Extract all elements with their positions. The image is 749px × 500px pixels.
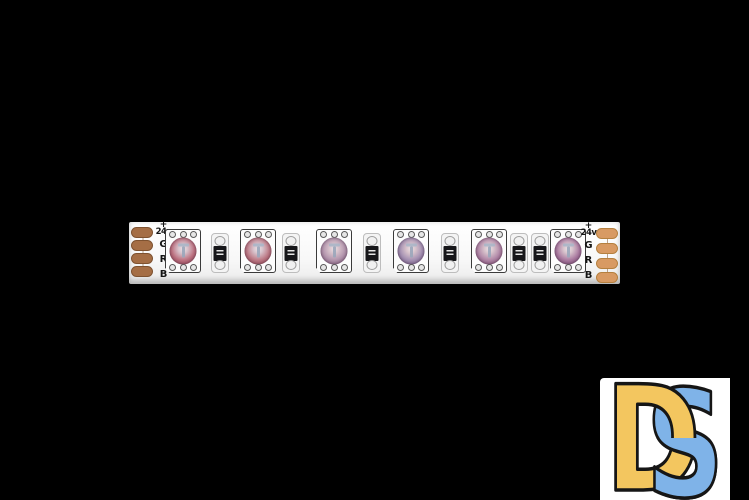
resistor-pad [215,236,226,246]
product-photo: + 24v G R B [0,0,749,500]
resistor-body [534,246,547,261]
resistor [531,233,549,273]
led-bottom-terminals [241,264,275,271]
resistor-pad [286,260,297,270]
right-solder-terminal [593,222,620,284]
label-red: R [585,253,593,268]
resistor-pad [367,260,378,270]
label-green: G [584,238,592,253]
led-lens [321,238,348,265]
led-lens [555,238,582,265]
resistor-pad [535,260,546,270]
led-lens [245,238,272,265]
led-module [240,229,276,273]
label-blue: B [585,268,593,283]
led-bottom-terminals [394,264,428,271]
resistor-body [444,246,457,261]
resistor-body [285,246,298,261]
led-bottom-terminals [317,264,351,271]
copper-pad [596,228,618,239]
led-module [393,229,429,273]
resistor [441,233,459,273]
ds-logo-art: S D S [600,378,730,500]
resistor-pad [445,236,456,246]
resistor-pad [215,260,226,270]
copper-pad [596,258,618,269]
ds-logo: S D S [600,378,730,500]
led-module [316,229,352,273]
led-lens [170,238,197,265]
resistor [363,233,381,273]
resistor-body [513,246,526,261]
led-bottom-terminals [166,264,200,271]
copper-pad [596,272,618,283]
resistor-body [214,246,227,261]
resistor [510,233,528,273]
resistor-pad [535,236,546,246]
resistor-pad [367,236,378,246]
resistor-body [366,246,379,261]
led-module [165,229,201,273]
resistor-pad [286,236,297,246]
resistor-pad [445,260,456,270]
led-lens [476,238,503,265]
led-lens [398,238,425,265]
resistor-pad [514,236,525,246]
components-rail [129,222,620,284]
resistor [282,233,300,273]
resistor [211,233,229,273]
led-module [471,229,507,273]
led-bottom-terminals [472,264,506,271]
copper-pad [596,243,618,254]
resistor-pad [514,260,525,270]
led-strip-pcb: + 24v G R B [129,222,620,284]
